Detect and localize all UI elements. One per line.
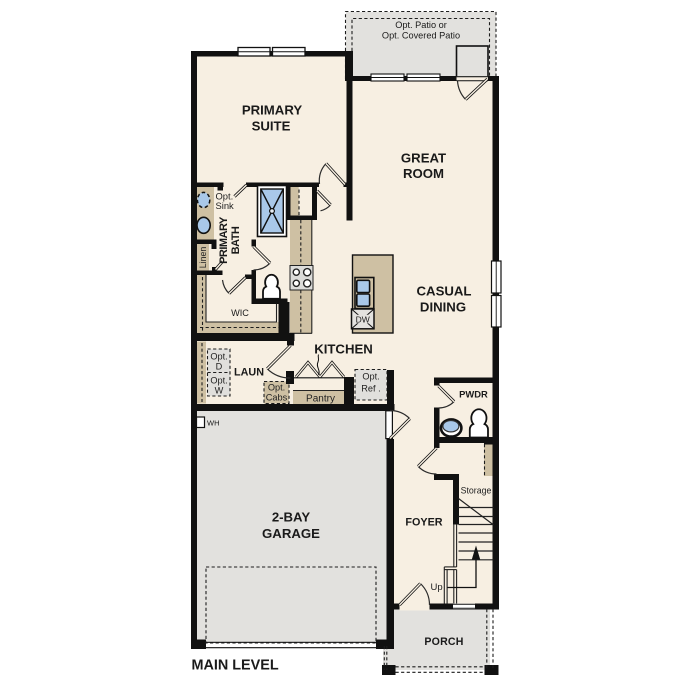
svg-text:Sink: Sink xyxy=(216,200,235,211)
svg-text:DINING: DINING xyxy=(420,300,466,315)
svg-text:PRIMARY: PRIMARY xyxy=(218,216,230,264)
svg-text:Linen: Linen xyxy=(198,247,208,269)
svg-text:Pantry: Pantry xyxy=(306,394,335,405)
svg-text:PWDR: PWDR xyxy=(459,389,488,400)
svg-text:PORCH: PORCH xyxy=(424,636,463,648)
svg-text:Opt. Patio or: Opt. Patio or xyxy=(395,20,447,30)
svg-text:ROOM: ROOM xyxy=(403,166,444,181)
svg-text:GARAGE: GARAGE xyxy=(262,526,320,541)
svg-text:Ref .: Ref . xyxy=(361,384,380,394)
svg-text:D: D xyxy=(216,362,223,372)
svg-text:Opt.: Opt. xyxy=(210,352,227,362)
svg-text:W: W xyxy=(215,386,224,396)
svg-text:WH: WH xyxy=(207,419,220,428)
svg-text:Storage: Storage xyxy=(461,486,492,496)
svg-text:WIC: WIC xyxy=(231,308,249,318)
svg-text:Cabs: Cabs xyxy=(266,393,288,403)
svg-text:DW: DW xyxy=(356,314,370,324)
svg-text:Opt.: Opt. xyxy=(362,372,379,382)
svg-text:Up: Up xyxy=(431,582,443,593)
svg-text:Opt.: Opt. xyxy=(210,376,227,386)
svg-text:Opt. Covered Patio: Opt. Covered Patio xyxy=(382,31,460,41)
svg-text:Opt.: Opt. xyxy=(268,383,285,393)
svg-text:GREAT: GREAT xyxy=(401,151,446,166)
svg-text:2-BAY: 2-BAY xyxy=(272,510,311,525)
svg-text:FOYER: FOYER xyxy=(405,517,442,529)
svg-text:PRIMARY: PRIMARY xyxy=(242,103,303,118)
svg-text:KITCHEN: KITCHEN xyxy=(314,342,373,357)
svg-text:BATH: BATH xyxy=(230,226,242,254)
svg-text:MAIN LEVEL: MAIN LEVEL xyxy=(192,658,279,674)
svg-text:CASUAL: CASUAL xyxy=(417,284,472,299)
svg-text:SUITE: SUITE xyxy=(252,119,291,134)
svg-text:LAUN: LAUN xyxy=(234,367,264,379)
